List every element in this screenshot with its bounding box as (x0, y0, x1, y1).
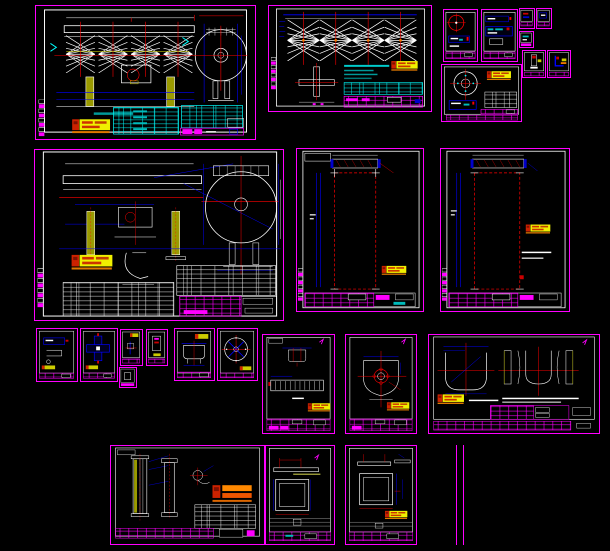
small-part-d-drawing (147, 330, 167, 365)
notes-text (344, 65, 389, 79)
parts-table (344, 83, 423, 95)
plate-view (274, 458, 321, 514)
revision-mark-icon (401, 339, 405, 344)
title-block (122, 359, 139, 363)
end-view (202, 156, 281, 275)
title-block (39, 373, 73, 378)
u-section-view (438, 343, 495, 396)
revision-mark-icon (583, 340, 587, 345)
title-block (446, 52, 475, 59)
detail-b-drawing (482, 10, 517, 61)
parts-table (63, 282, 174, 316)
sheet-part-t3[interactable] (519, 31, 534, 48)
end-shield-drawing (346, 335, 416, 433)
sheet-detail-b[interactable] (481, 9, 518, 62)
margin-grid (37, 269, 43, 308)
part-t3-drawing (520, 32, 533, 47)
sheet-small-part-a[interactable] (36, 328, 78, 382)
revision-mark-icon (319, 339, 323, 344)
sheet-part-t5[interactable] (547, 50, 571, 78)
company-stamp-icon (487, 71, 511, 80)
shell-plate-b-drawing (441, 149, 569, 311)
company-stamp-icon (387, 402, 409, 410)
sheet-shell-plate-b[interactable] (440, 148, 570, 312)
title-block (484, 52, 515, 59)
cad-model-space[interactable] (0, 0, 610, 551)
small-part-b-drawing (81, 329, 117, 381)
sheet-part-t4[interactable] (522, 50, 546, 78)
plate-view (310, 169, 380, 289)
company-stamp-icon (308, 403, 330, 411)
small-part-a-drawing (37, 329, 77, 381)
sheet-detail-a[interactable] (443, 9, 478, 62)
margin-grid (39, 100, 45, 137)
plate-view (358, 454, 411, 508)
title-block (350, 419, 412, 431)
title-block (121, 383, 134, 386)
sheet-weld-assembly[interactable] (34, 149, 284, 321)
comb-profile-view (268, 376, 323, 391)
general-assembly-drawing (36, 6, 255, 139)
note-text (502, 402, 561, 403)
title-block (305, 293, 415, 307)
company-stamp-icon (212, 485, 251, 502)
sheet-trough-sections[interactable] (428, 334, 600, 434)
company-stamp-icon (391, 61, 417, 71)
sections-view (498, 347, 578, 396)
title-block (449, 293, 561, 307)
edge-view (471, 155, 538, 171)
title-block (115, 528, 254, 538)
title-block (349, 522, 412, 540)
shell-plate-a-drawing (297, 149, 423, 311)
sheet-shell-plate-a[interactable] (296, 148, 424, 312)
sheet-blade-trusses[interactable] (268, 5, 432, 112)
sheet-part-t2[interactable] (536, 8, 552, 29)
title-block (177, 372, 210, 378)
sheet-partial-edge[interactable] (456, 445, 464, 545)
title-block (269, 518, 330, 540)
title-block (220, 373, 253, 378)
parts-table (195, 505, 256, 529)
edge-view (330, 155, 393, 173)
note-text (522, 252, 552, 253)
title-block (490, 406, 590, 420)
frame-plate-b-drawing (346, 446, 416, 544)
trough-part-drawing (175, 329, 214, 380)
revision-mark-icon (315, 455, 319, 460)
sheet-frame-plate-b[interactable] (345, 445, 417, 545)
truss-view (279, 12, 416, 65)
margin-grid (271, 57, 276, 89)
sheet-small-part-e[interactable] (119, 367, 137, 388)
margin-grid (298, 269, 303, 301)
trough-sections-drawing (429, 335, 599, 433)
plate-view (451, 173, 524, 289)
shield-view (358, 351, 407, 407)
note-text (469, 400, 498, 401)
sheet-trough-part[interactable] (174, 328, 215, 381)
part-t4-drawing (523, 51, 545, 77)
material-table (181, 106, 242, 129)
title-block (180, 296, 277, 316)
drive-assembly-drawing (442, 65, 521, 121)
cross-part-view (295, 63, 338, 105)
company-stamp-icon (72, 119, 110, 133)
company-stamp-icon (382, 266, 407, 275)
blade-truss-drawing (269, 6, 431, 111)
title-block (267, 419, 330, 431)
column-view-2 (162, 454, 178, 519)
sheet-liner-comb[interactable] (262, 334, 335, 434)
title-block (83, 373, 114, 378)
parts-table (485, 92, 517, 107)
sheet-small-part-b[interactable] (80, 328, 118, 382)
parts-table (113, 107, 178, 134)
sheet-drive-assembly[interactable] (441, 64, 522, 122)
part-t1-drawing (520, 9, 534, 28)
sheet-end-shield[interactable] (345, 334, 417, 434)
sheet-column-parts[interactable] (110, 445, 265, 545)
title-block (148, 359, 164, 363)
weld-assembly-drawing (35, 150, 283, 320)
note-text (522, 258, 544, 259)
bucket-view (282, 348, 311, 366)
part-t2-drawing (537, 9, 551, 28)
sheet-hand-wheel[interactable] (217, 328, 258, 381)
hand-wheel-drawing (218, 329, 257, 380)
sheet-small-part-c[interactable] (120, 329, 143, 366)
part-t5-drawing (548, 51, 570, 77)
title-block (344, 96, 423, 107)
front-view (50, 15, 196, 107)
small-part-e-drawing (120, 368, 136, 387)
company-stamp-icon (385, 511, 407, 519)
sheet-general-assembly[interactable] (35, 5, 256, 140)
small-part-c-drawing (121, 330, 142, 365)
end-view (194, 16, 247, 103)
sheet-frame-plate-a[interactable] (265, 445, 335, 545)
company-stamp-icon (72, 255, 113, 270)
sheet-small-part-d[interactable] (146, 329, 168, 366)
label-text (292, 398, 304, 399)
material-table (177, 266, 276, 296)
frame-plate-a-drawing (266, 446, 334, 544)
bottom-strip (434, 421, 591, 430)
detail-a-drawing (444, 10, 477, 61)
company-stamp-icon (438, 394, 464, 404)
margin-grid (442, 269, 447, 301)
column-view-1 (131, 454, 168, 521)
liner-comb-drawing (263, 335, 334, 433)
sheet-part-t1[interactable] (519, 8, 535, 29)
note-text (502, 398, 578, 399)
title-block (446, 109, 517, 120)
column-parts-drawing (111, 446, 264, 544)
company-stamp-icon (526, 225, 551, 234)
detail-part (190, 466, 214, 486)
